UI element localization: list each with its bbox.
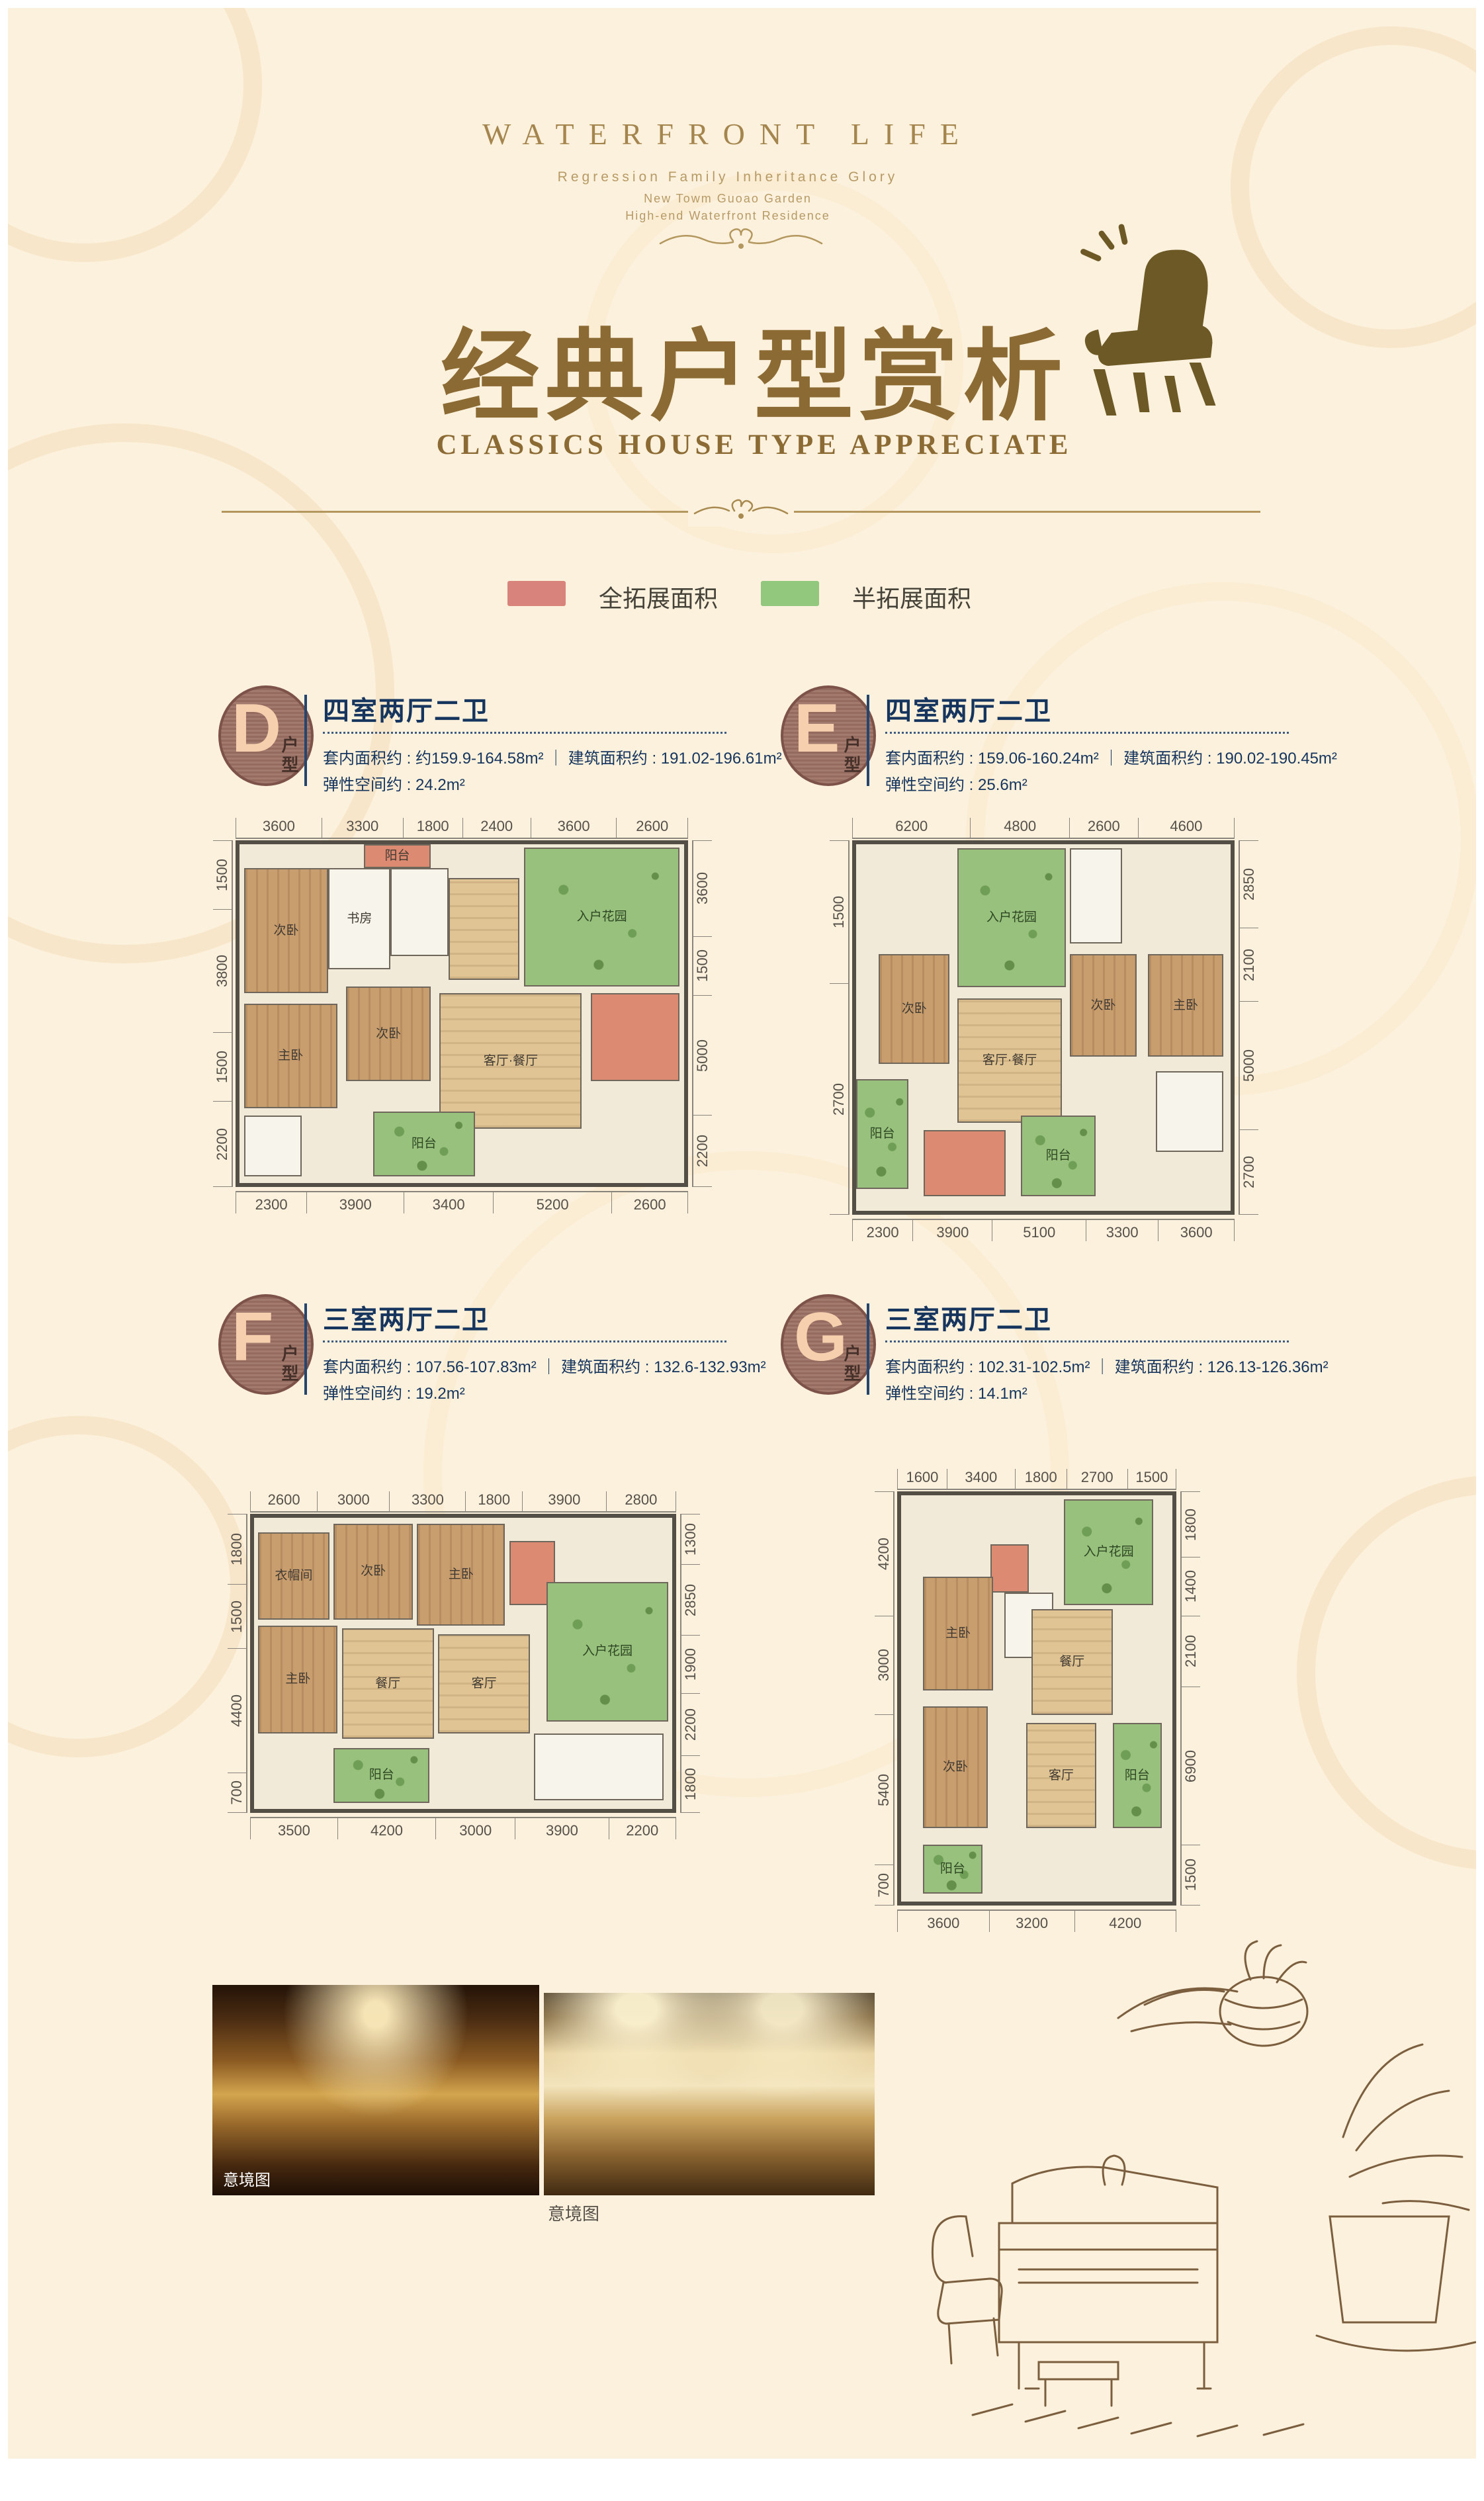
info-divider (304, 695, 307, 786)
dim-value: 2700 (1241, 1156, 1258, 1188)
dim-value: 2600 (636, 818, 668, 835)
dim-value: 3200 (1016, 1915, 1048, 1932)
dim-segment: 1600 (897, 1469, 947, 1489)
brand-tagline: Regression Family Inheritance Glory (344, 169, 1112, 185)
brand-title: WATERFRONT LIFE (344, 116, 1112, 152)
dim-segment: 3900 (912, 1220, 992, 1241)
dim-segment: 2400 (462, 818, 531, 838)
room-label: 主卧 (945, 1626, 971, 1641)
dim-value: 1400 (1182, 1570, 1200, 1602)
dim-segment: 1400 (1182, 1557, 1200, 1615)
unit-f-areas: 套内面积约 : 107.56-107.83m² ｜ 建筑面积约 : 132.6-… (323, 1354, 766, 1377)
dim-value: 1900 (682, 1648, 699, 1681)
room-block: 次卧 (923, 1706, 988, 1828)
dim-value: 1500 (228, 1601, 245, 1633)
interior-photo-1: 意境图 (212, 1985, 539, 2195)
room-block: 主卧 (1148, 954, 1223, 1057)
dotted-rule (885, 732, 1289, 734)
dim-value: 2300 (255, 1196, 288, 1213)
photo-2-caption: 意境图 (548, 2201, 599, 2225)
room-block: 书房 (328, 868, 390, 970)
dim-segment: 1800 (1015, 1469, 1067, 1489)
room-label: 次卧 (376, 1027, 401, 1041)
room-label: 主卧 (278, 1049, 303, 1063)
dim-segment: 1500 (213, 840, 232, 909)
dim-value: 1500 (214, 859, 231, 891)
dim-value: 3800 (214, 955, 231, 987)
room-block: 客厅 (438, 1634, 530, 1733)
dim-segment: 6200 (852, 818, 970, 838)
room-label: 餐厅 (375, 1677, 400, 1691)
room-label: 阳台 (1046, 1149, 1071, 1163)
dim-segment: 5000 (693, 995, 712, 1115)
dim-segment: 2300 (852, 1220, 912, 1241)
dim-value: 3500 (278, 1822, 310, 1839)
unit-d-info: 四室两厅二卫 套内面积约 : 约159.9-164.58m² ｜ 建筑面积约 :… (304, 689, 781, 802)
unit-e-ruler-bottom: 23003900510033003600 (852, 1219, 1235, 1241)
room-block (990, 1544, 1028, 1593)
dim-value: 3000 (875, 1649, 893, 1681)
dim-value: 4200 (875, 1538, 893, 1570)
poster-page: { "header": { "brand": "WATERFRONT LIFE"… (0, 0, 1484, 2501)
dim-value: 5400 (875, 1774, 893, 1806)
room-block (1156, 1071, 1223, 1152)
unit-e-flex-space: 弹性空间约 : 25.6m² (885, 771, 1027, 795)
dim-value: 3300 (346, 818, 378, 835)
dim-value: 5000 (1241, 1049, 1258, 1082)
dim-segment: 2200 (693, 1115, 712, 1187)
unit-d-ruler-left: 1500380015002200 (213, 840, 233, 1187)
room-label: 次卧 (902, 1002, 927, 1016)
unit-g-ruler-top: 16003400180027001500 (897, 1469, 1176, 1490)
dim-segment: 4200 (875, 1491, 893, 1616)
unit-e-layout-title: 四室两厅二卫 (885, 689, 1052, 728)
unit-g-ruler-left: 420030005400700 (875, 1491, 895, 1906)
chair-icon (1059, 217, 1257, 429)
unit-f-ruler-top: 260030003300180039002800 (250, 1491, 676, 1513)
room-block: 次卧 (879, 954, 950, 1064)
unit-d-letter: D (232, 689, 281, 768)
dim-segment: 1500 (693, 936, 712, 995)
dim-segment: 3300 (1086, 1220, 1158, 1241)
dim-value: 4800 (1004, 818, 1036, 835)
dim-value: 2600 (268, 1491, 300, 1509)
dim-segment: 2100 (1240, 928, 1258, 1001)
dim-segment: 3000 (435, 1818, 515, 1839)
room-label: 衣帽间 (275, 1569, 313, 1583)
dim-value: 2200 (214, 1128, 231, 1161)
room-label: 次卧 (943, 1760, 968, 1775)
photo-1-caption: 意境图 (223, 2167, 271, 2190)
unit-g-layout-title: 三室两厅二卫 (885, 1298, 1052, 1337)
room-block: 入户花园 (957, 848, 1066, 988)
unit-e-ruler-top: 6200480026004600 (852, 818, 1235, 839)
room-label: 阳台 (1125, 1769, 1150, 1783)
unit-f-suffix: 户型 (277, 1344, 302, 1384)
dim-segment: 1800 (465, 1491, 521, 1511)
dim-value: 1500 (1135, 1469, 1168, 1486)
dim-segment: 3000 (875, 1616, 893, 1714)
room-block: 次卧 (1070, 954, 1137, 1057)
dim-segment: 4400 (228, 1648, 246, 1773)
dim-value: 1800 (228, 1533, 245, 1565)
room-block: 餐厅 (342, 1628, 434, 1739)
dim-segment: 2600 (1069, 818, 1138, 838)
room-label: 阳台 (940, 1862, 965, 1876)
room-label: 阳台 (870, 1127, 895, 1141)
dim-value: 2850 (1241, 868, 1258, 900)
dim-segment: 4600 (1138, 818, 1235, 838)
room-label: 入户花园 (582, 1644, 633, 1659)
room-label: 书房 (347, 912, 372, 926)
dim-segment: 700 (875, 1865, 893, 1906)
dim-value: 2700 (830, 1083, 848, 1116)
dim-value: 3300 (412, 1491, 444, 1509)
dim-segment: 5100 (992, 1220, 1086, 1241)
dim-value: 1600 (906, 1469, 938, 1486)
dim-value: 2600 (1088, 818, 1120, 835)
dim-value: 2100 (1241, 949, 1258, 981)
dim-value: 1500 (694, 949, 711, 982)
dim-value: 3900 (548, 1491, 580, 1509)
unit-e-floorplan: 入户花园次卧次卧主卧客厅·餐厅阳台阳台 (852, 840, 1235, 1215)
dim-segment: 3600 (897, 1911, 989, 1932)
background-ornament (1297, 1475, 1484, 1870)
room-block: 餐厅 (1031, 1609, 1113, 1715)
dim-value: 3400 (433, 1196, 465, 1213)
room-label: 客厅 (1049, 1769, 1074, 1783)
dim-segment: 3900 (306, 1192, 404, 1213)
room-block: 阳台 (1113, 1723, 1162, 1829)
unit-f-ruler-left: 180015004400700 (228, 1514, 247, 1813)
room-block (534, 1733, 664, 1800)
unit-d-badge: D 户型 (218, 685, 314, 786)
dim-value: 3900 (339, 1196, 372, 1213)
room-label: 阳台 (412, 1137, 437, 1151)
dim-value: 3400 (965, 1469, 997, 1486)
dim-segment: 1300 (681, 1514, 700, 1564)
room-block: 客厅·餐厅 (439, 993, 582, 1129)
room-block: 入户花园 (1064, 1499, 1153, 1605)
room-block: 阳台 (364, 844, 431, 868)
dim-value: 1800 (1182, 1509, 1200, 1541)
unit-f-ruler-bottom: 35004200300039002200 (250, 1817, 676, 1839)
dim-value: 1800 (1025, 1469, 1057, 1486)
unit-d-ruler-right: 3600150050002200 (692, 840, 712, 1187)
dim-segment: 2200 (681, 1693, 700, 1755)
room-label: 主卧 (285, 1672, 310, 1687)
flourish-ornament (655, 226, 827, 257)
dim-value: 1500 (1182, 1859, 1200, 1891)
dim-segment: 2600 (250, 1491, 317, 1511)
dim-segment: 2600 (616, 818, 688, 838)
dim-value: 3600 (694, 872, 711, 904)
dim-segment: 1500 (1182, 1845, 1200, 1906)
unit-d-areas: 套内面积约 : 约159.9-164.58m² ｜ 建筑面积约 : 191.02… (323, 745, 782, 768)
room-label: 客厅·餐厅 (982, 1053, 1037, 1068)
unit-f-letter: F (232, 1298, 274, 1377)
room-label: 阳台 (385, 849, 410, 863)
unit-f-flex-space: 弹性空间约 : 19.2m² (323, 1380, 465, 1403)
dim-value: 2600 (634, 1196, 666, 1213)
dim-value: 3600 (927, 1915, 959, 1932)
dim-segment: 5000 (1240, 1001, 1258, 1129)
room-label: 餐厅 (1059, 1655, 1084, 1669)
unit-g-ruler-right: 18001400210069001500 (1180, 1491, 1200, 1906)
dim-segment: 1900 (681, 1635, 700, 1693)
dim-segment: 2300 (236, 1192, 306, 1213)
dim-segment: 2100 (1182, 1616, 1200, 1687)
dim-segment: 3500 (250, 1818, 337, 1839)
unit-g-suffix: 户型 (840, 1344, 864, 1384)
room-block (591, 993, 679, 1081)
unit-d-layout-title: 四室两厅二卫 (323, 689, 490, 728)
unit-g-ruler-bottom: 360032004200 (897, 1909, 1176, 1932)
dim-segment: 700 (228, 1773, 246, 1813)
room-block (390, 868, 448, 956)
room-label: 次卧 (361, 1564, 386, 1579)
dim-segment: 3400 (404, 1192, 493, 1213)
dim-value: 2700 (1081, 1469, 1113, 1486)
room-label: 次卧 (1091, 998, 1116, 1013)
dim-segment: 2800 (606, 1491, 676, 1511)
unit-e-info: 四室两厅二卫 套内面积约 : 159.06-160.24m² ｜ 建筑面积约 :… (867, 689, 1343, 802)
unit-d-flex-space: 弹性空间约 : 24.2m² (323, 771, 465, 795)
dim-segment: 1800 (403, 818, 462, 838)
room-block: 次卧 (333, 1524, 413, 1620)
dim-segment: 3400 (947, 1469, 1015, 1489)
room-block: 主卧 (244, 1004, 337, 1109)
unit-d-suffix: 户型 (277, 736, 302, 775)
dim-segment: 2700 (1067, 1469, 1127, 1489)
legend-label-half-extension: 半拓展面积 (852, 580, 971, 614)
unit-d-ruler-top: 360033001800240036002600 (236, 818, 688, 839)
room-block (244, 1116, 302, 1176)
unit-e-areas: 套内面积约 : 159.06-160.24m² ｜ 建筑面积约 : 190.02… (885, 745, 1337, 768)
room-label: 入户花园 (1084, 1545, 1134, 1559)
room-label: 次卧 (274, 924, 299, 938)
room-block: 次卧 (346, 987, 431, 1081)
dim-value: 4400 (228, 1694, 245, 1727)
dim-segment: 2600 (611, 1192, 688, 1213)
room-block: 阳台 (373, 1112, 476, 1176)
room-label: 主卧 (1173, 998, 1198, 1013)
dim-value: 2850 (682, 1584, 699, 1616)
unit-e-letter: E (794, 689, 840, 768)
dim-value: 2200 (682, 1708, 699, 1741)
unit-f-badge: F 户型 (218, 1294, 314, 1395)
dim-value: 2200 (694, 1135, 711, 1167)
interior-photo-2 (544, 1993, 875, 2195)
room-block: 阳台 (333, 1748, 429, 1804)
dim-value: 3900 (936, 1224, 969, 1241)
unit-e-suffix: 户型 (840, 736, 864, 775)
dim-value: 6900 (1182, 1750, 1200, 1782)
dim-value: 3900 (546, 1822, 578, 1839)
room-block: 入户花园 (524, 848, 679, 987)
dim-segment: 2200 (213, 1101, 232, 1187)
unit-g-floorplan: 入户花园主卧餐厅次卧客厅阳台阳台 (897, 1491, 1176, 1906)
dim-value: 6200 (895, 818, 928, 835)
info-divider (304, 1303, 307, 1395)
dim-value: 3600 (558, 818, 590, 835)
dim-segment: 1500 (213, 1032, 232, 1101)
room-block: 衣帽间 (258, 1532, 329, 1620)
room-block: 客厅 (1026, 1723, 1097, 1829)
dim-value: 1500 (830, 896, 848, 928)
dim-segment: 1500 (1127, 1469, 1176, 1489)
room-block (449, 878, 520, 980)
background-ornament (0, 1416, 249, 1757)
dim-value: 2400 (480, 818, 513, 835)
room-block: 阳台 (856, 1079, 908, 1189)
dim-value: 5200 (537, 1196, 569, 1213)
unit-g-flex-space: 弹性空间约 : 14.1m² (885, 1380, 1027, 1403)
dim-segment: 3300 (322, 818, 403, 838)
unit-e-ruler-left: 15002700 (830, 840, 850, 1215)
room-label: 客厅 (472, 1677, 497, 1691)
unit-d-floorplan: 次卧书房阳台入户花园主卧次卧客厅·餐厅阳台 (236, 840, 688, 1187)
dim-value: 2800 (625, 1491, 657, 1509)
unit-e-badge: E 户型 (781, 685, 876, 786)
dim-segment: 3900 (522, 1491, 606, 1511)
unit-g-info: 三室两厅二卫 套内面积约 : 102.31-102.5m² ｜ 建筑面积约 : … (867, 1298, 1343, 1411)
dim-segment: 1500 (830, 840, 848, 983)
unit-g-badge: G 户型 (781, 1294, 876, 1395)
dim-value: 2100 (1182, 1635, 1200, 1667)
page-title: 经典户型赏析 (371, 296, 1138, 440)
dim-value: 4200 (1109, 1915, 1141, 1932)
room-block: 次卧 (244, 868, 329, 993)
dim-value: 700 (228, 1780, 245, 1805)
dim-value: 3600 (1180, 1224, 1213, 1241)
room-block: 主卧 (417, 1524, 505, 1626)
unit-f-layout-title: 三室两厅二卫 (323, 1298, 490, 1337)
legend-label-full-extension: 全拓展面积 (599, 580, 718, 614)
divider-ornament (688, 494, 794, 527)
dim-value: 1800 (682, 1768, 699, 1800)
dim-segment: 2850 (1240, 840, 1258, 928)
dim-segment: 4800 (970, 818, 1069, 838)
brand-line3: High-end Waterfront Residence (344, 209, 1112, 223)
dim-value: 5000 (694, 1039, 711, 1072)
dim-segment: 5400 (875, 1714, 893, 1865)
room-block: 阳台 (1021, 1116, 1096, 1196)
dim-value: 1800 (417, 818, 449, 835)
background-ornament (0, 0, 262, 262)
room-label: 入户花园 (986, 910, 1037, 925)
dim-segment: 3900 (515, 1818, 608, 1839)
room-label: 阳台 (369, 1768, 394, 1782)
dim-value: 1800 (478, 1491, 510, 1509)
unit-f-info: 三室两厅二卫 套内面积约 : 107.56-107.83m² ｜ 建筑面积约 :… (304, 1298, 781, 1411)
dim-segment: 2200 (609, 1818, 676, 1839)
dim-segment: 3300 (389, 1491, 465, 1511)
dim-value: 3000 (459, 1822, 492, 1839)
unit-d-ruler-bottom: 23003900340052002600 (236, 1191, 688, 1213)
dim-value: 4600 (1170, 818, 1202, 835)
legend-swatch-full-extension (507, 581, 566, 606)
dim-segment: 2850 (681, 1564, 700, 1635)
sketch-illustration (920, 1939, 1484, 2455)
dim-segment: 3600 (236, 818, 322, 838)
room-block (924, 1130, 1006, 1196)
room-block: 客厅·餐厅 (957, 998, 1062, 1123)
room-block (1070, 848, 1122, 943)
room-label: 客厅·餐厅 (484, 1054, 538, 1069)
room-block: 阳台 (923, 1845, 982, 1894)
dim-segment: 3600 (531, 818, 617, 838)
room-block: 主卧 (923, 1577, 994, 1690)
dim-value: 1500 (214, 1051, 231, 1083)
unit-g-areas: 套内面积约 : 102.31-102.5m² ｜ 建筑面积约 : 126.13-… (885, 1354, 1329, 1377)
info-divider (867, 695, 869, 786)
brand-line2: New Towm Guoao Garden (344, 192, 1112, 206)
background-ornament (1231, 26, 1484, 348)
dim-segment: 2700 (830, 983, 848, 1215)
dotted-rule (885, 1340, 1289, 1342)
dim-value: 2200 (626, 1822, 658, 1839)
dim-value: 3000 (337, 1491, 370, 1509)
page-subtitle: CLASSICS HOUSE TYPE APPRECIATE (371, 429, 1138, 461)
unit-f-floorplan: 衣帽间次卧主卧入户花园主卧餐厅客厅阳台 (250, 1514, 676, 1813)
dim-segment: 3600 (693, 840, 712, 936)
dotted-rule (323, 1340, 726, 1342)
dim-value: 3600 (263, 818, 295, 835)
unit-e-ruler-right: 2850210050002700 (1239, 840, 1258, 1215)
room-label: 主卧 (449, 1567, 474, 1582)
dim-segment: 6900 (1182, 1687, 1200, 1845)
dim-value: 2300 (867, 1224, 899, 1241)
legend-swatch-half-extension (761, 581, 819, 606)
dim-segment: 1800 (228, 1514, 246, 1584)
info-divider (867, 1303, 869, 1395)
unit-f-ruler-right: 13002850190022001800 (680, 1514, 700, 1813)
dim-value: 5100 (1023, 1224, 1055, 1241)
room-label: 入户花园 (577, 910, 627, 924)
dim-value: 1300 (682, 1523, 699, 1556)
dim-segment: 3800 (213, 909, 232, 1032)
dim-segment: 1800 (1182, 1491, 1200, 1557)
dim-segment: 1800 (681, 1755, 700, 1813)
dim-segment: 3600 (1158, 1220, 1235, 1241)
dim-segment: 3200 (989, 1911, 1074, 1932)
dim-segment: 4200 (337, 1818, 435, 1839)
dim-segment: 4200 (1074, 1911, 1176, 1932)
dim-segment: 2700 (1240, 1129, 1258, 1215)
dim-segment: 5200 (493, 1192, 611, 1213)
dim-segment: 3000 (317, 1491, 389, 1511)
room-block: 入户花园 (546, 1582, 668, 1722)
dim-value: 3300 (1106, 1224, 1139, 1241)
room-block: 主卧 (258, 1626, 337, 1733)
dim-value: 4200 (371, 1822, 403, 1839)
dotted-rule (323, 732, 726, 734)
dim-value: 700 (875, 1873, 893, 1898)
dim-segment: 1500 (228, 1584, 246, 1648)
